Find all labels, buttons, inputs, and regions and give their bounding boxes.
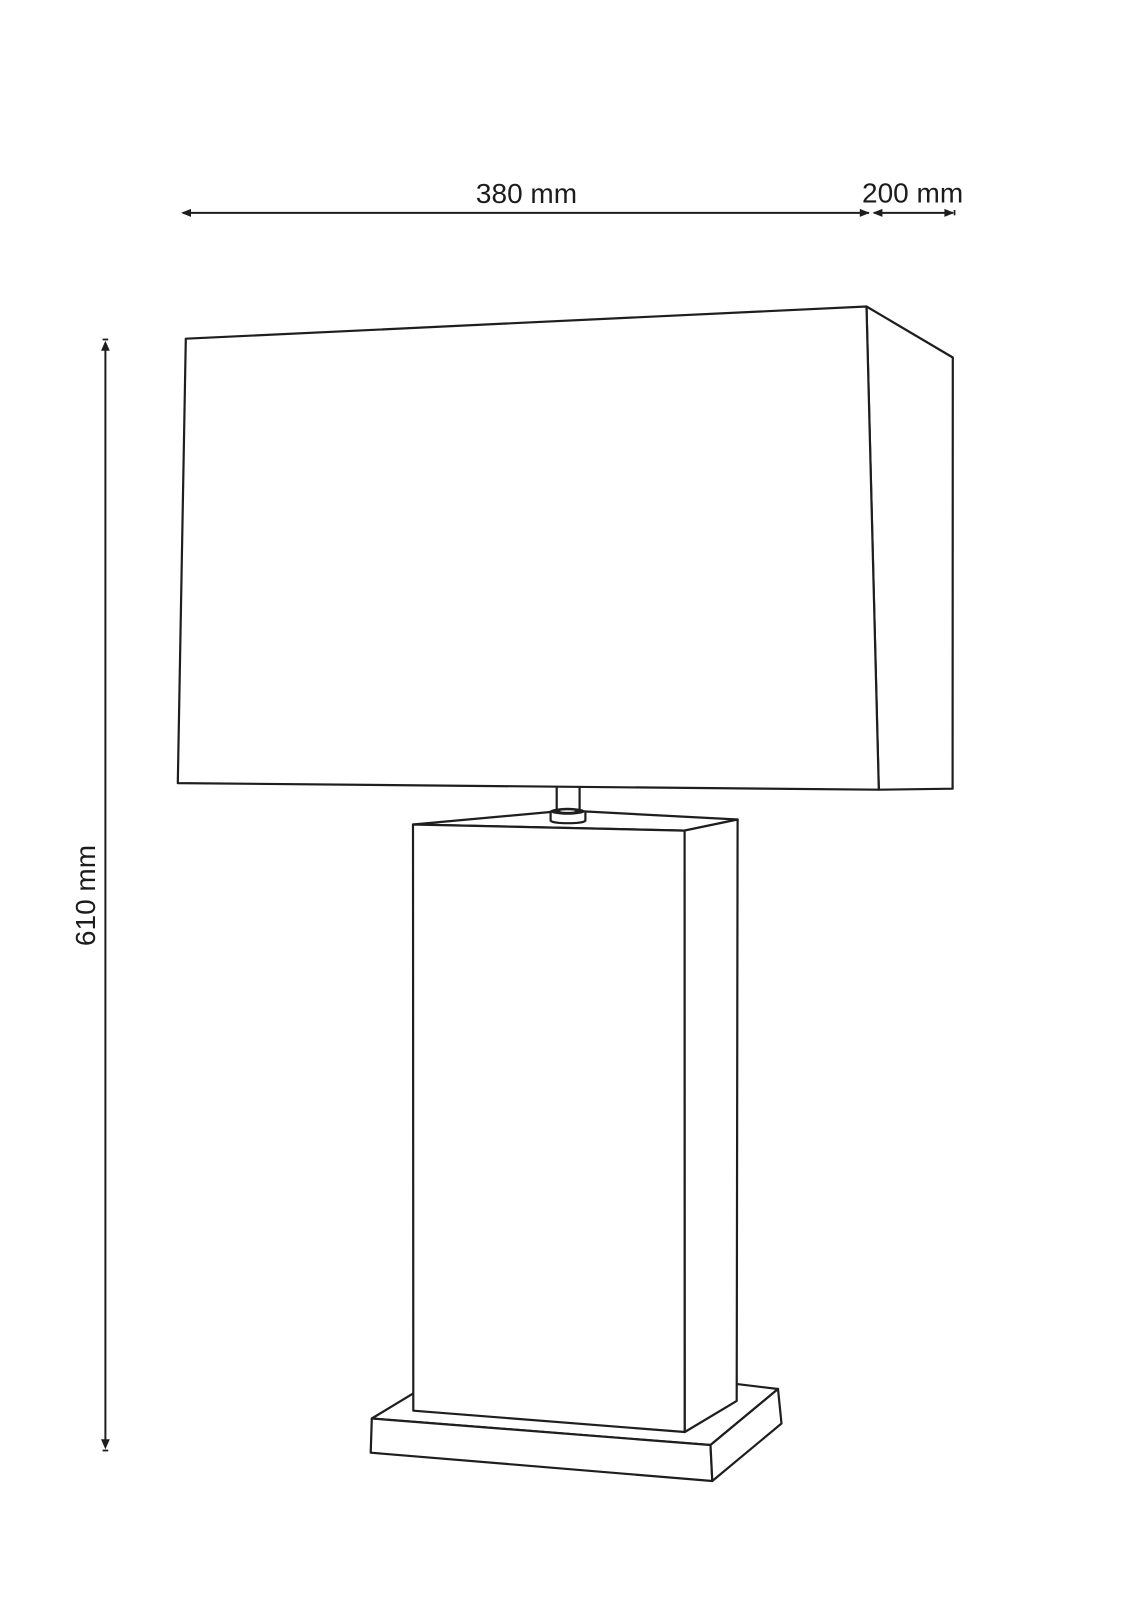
svg-text:380 mm: 380 mm <box>476 178 577 209</box>
svg-text:610 mm: 610 mm <box>70 845 101 946</box>
svg-text:200 mm: 200 mm <box>862 178 963 209</box>
